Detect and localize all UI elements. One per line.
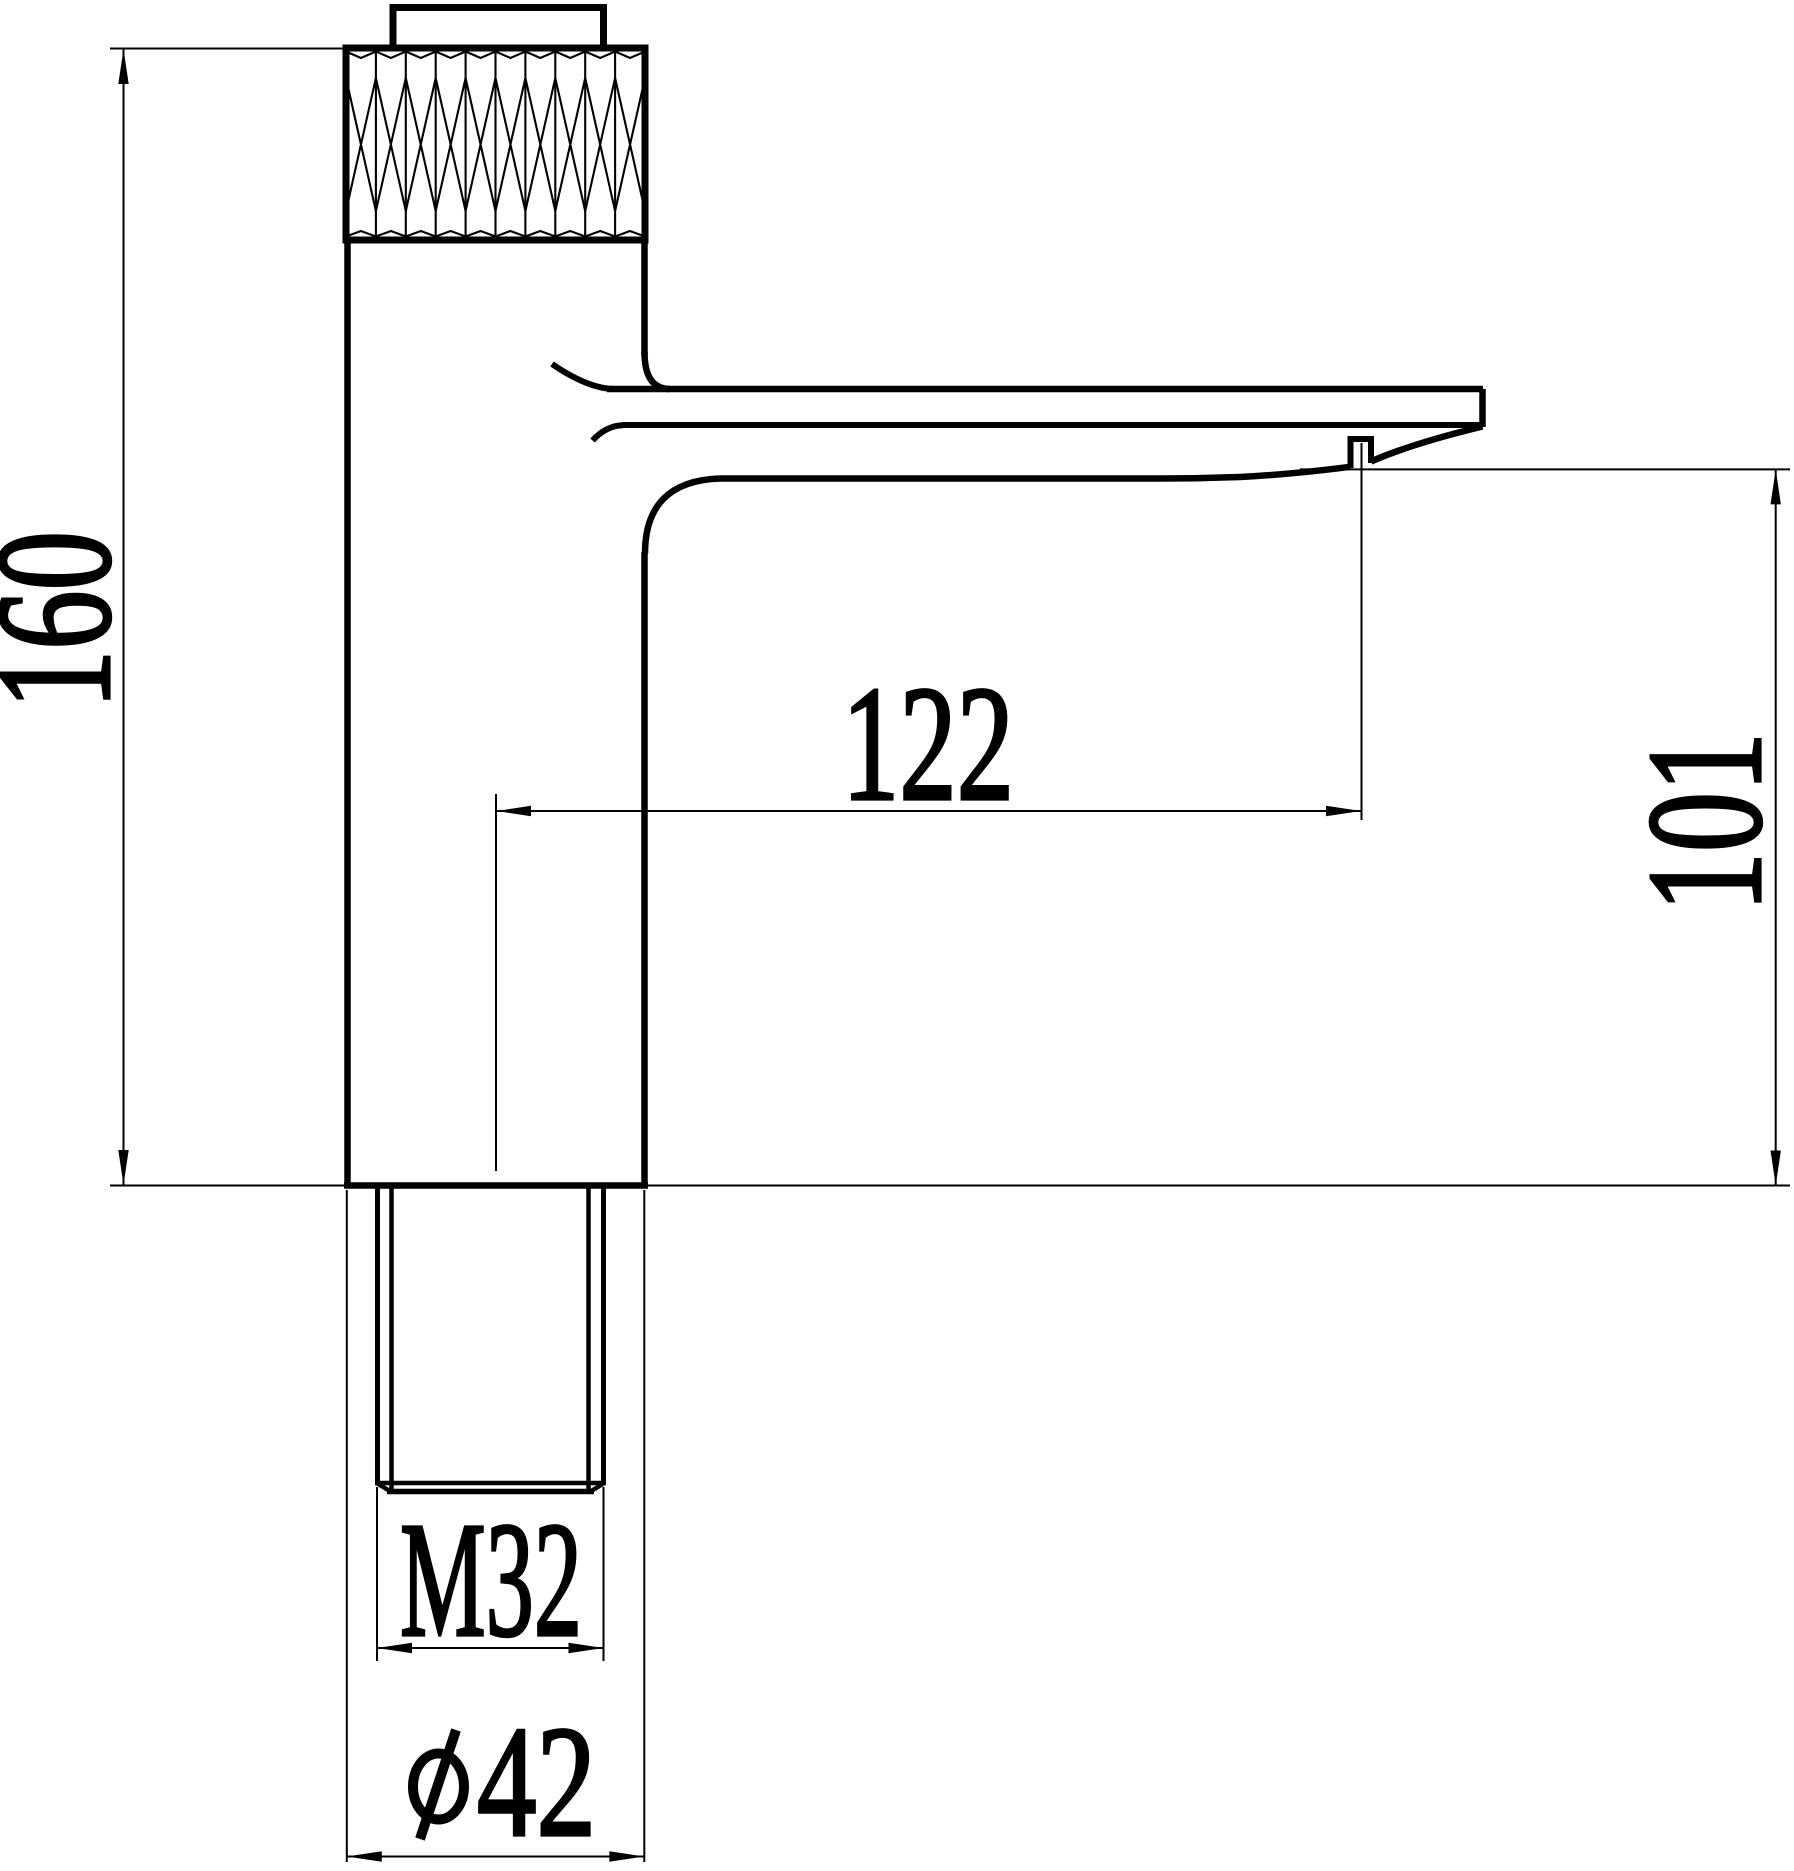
svg-text:42: 42	[477, 1694, 596, 1870]
svg-text:M32: M32	[400, 1488, 582, 1671]
svg-text:122: 122	[842, 652, 1014, 835]
svg-text:101: 101	[1613, 732, 1794, 912]
svg-text:160: 160	[0, 531, 145, 709]
